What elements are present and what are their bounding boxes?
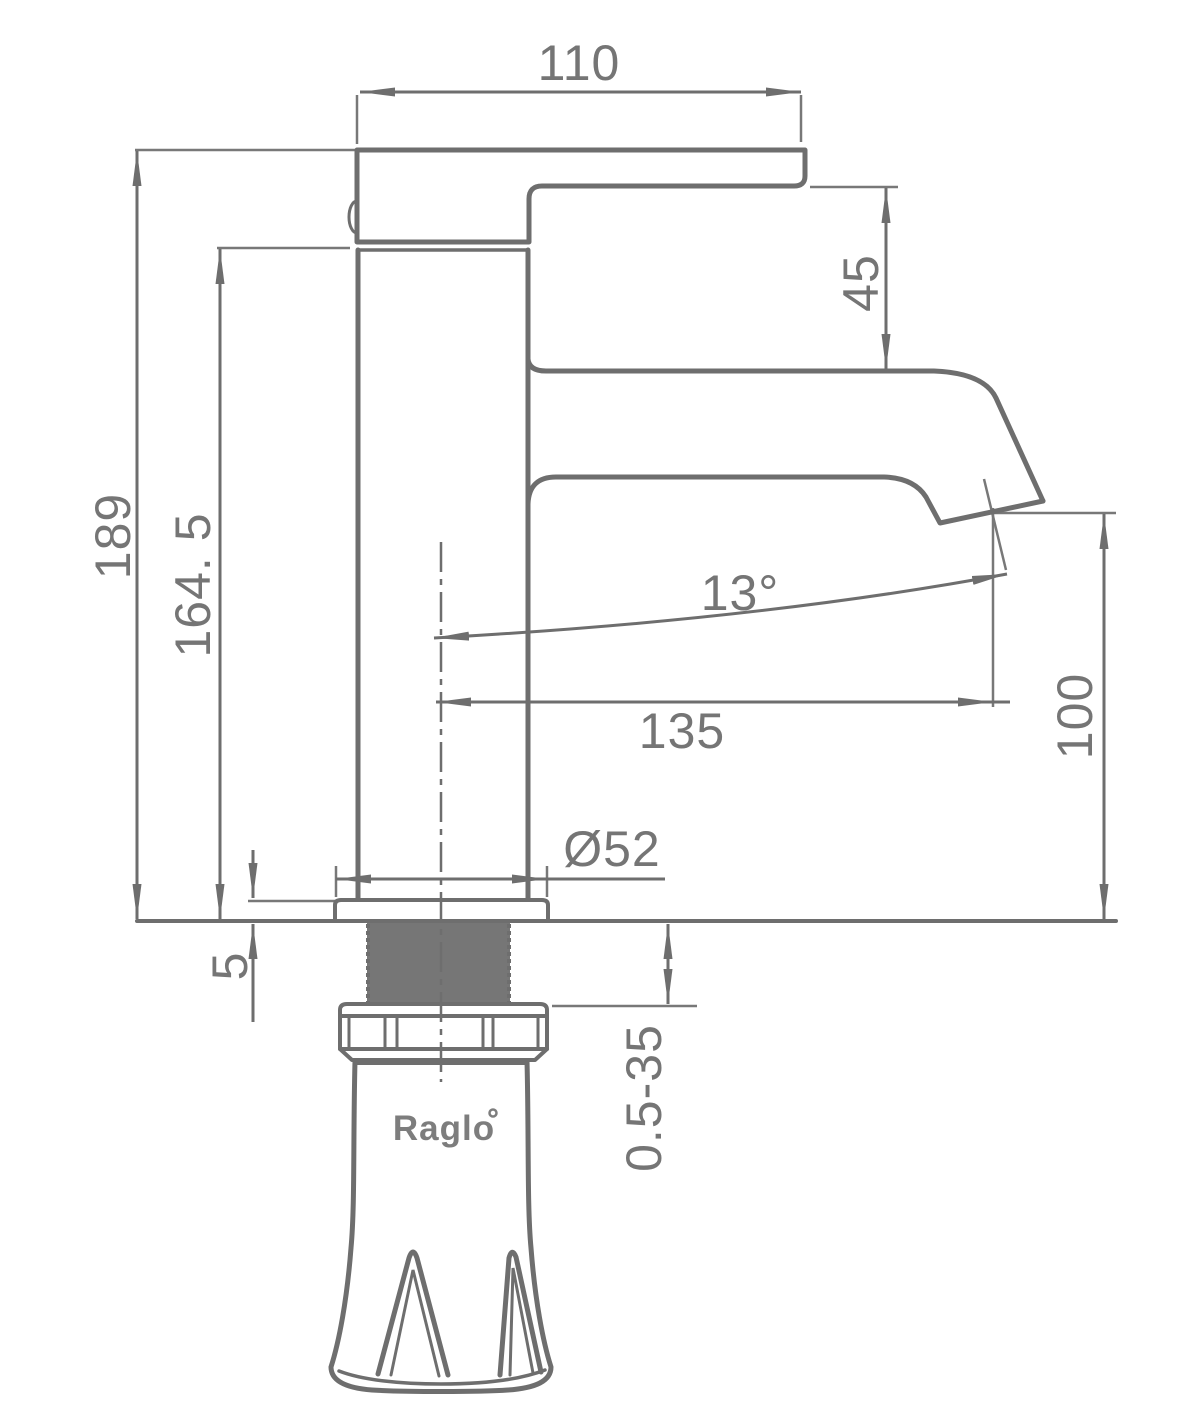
technical-drawing-canvas: 110 189 164. 5 45 13° 135 100 Ø52 5 0.5-… xyxy=(0,0,1197,1405)
spout-top-profile xyxy=(528,359,1043,501)
label-spout-reach: 135 xyxy=(639,703,725,759)
dimension-labels: 110 189 164. 5 45 13° 135 100 Ø52 5 0.5-… xyxy=(85,35,1103,1172)
label-flange-thickness: 5 xyxy=(202,952,258,981)
label-outlet-height: 100 xyxy=(1047,673,1103,759)
threaded-shank-fill xyxy=(367,923,510,1004)
ext-outlet-axis-slanted xyxy=(984,479,1006,570)
label-spout-angle: 13° xyxy=(701,565,780,621)
lock-nut xyxy=(340,1004,547,1060)
faucet-outline xyxy=(137,150,1116,1392)
label-body-height: 164. 5 xyxy=(165,512,221,657)
spout-bottom-profile-and-outlet-face xyxy=(528,477,1043,523)
threaded-shank xyxy=(367,923,510,1004)
handle-lever xyxy=(357,150,805,242)
dimension-lines xyxy=(137,92,1104,1022)
lock-nut-bottom-chamfer xyxy=(340,1049,547,1060)
label-spout-section-height: 45 xyxy=(833,254,889,312)
brand-logo: Raglo xyxy=(393,1109,497,1148)
faucet-dimension-drawing: 110 189 164. 5 45 13° 135 100 Ø52 5 0.5-… xyxy=(0,0,1197,1405)
brand-logo-text: Raglo xyxy=(393,1109,495,1148)
label-overall-height: 189 xyxy=(85,493,141,579)
label-mounting-range: 0.5-35 xyxy=(616,1024,672,1172)
label-spout-top-width: 110 xyxy=(538,35,621,91)
lock-nut-body xyxy=(340,1016,547,1049)
label-base-diameter: Ø52 xyxy=(563,821,661,877)
